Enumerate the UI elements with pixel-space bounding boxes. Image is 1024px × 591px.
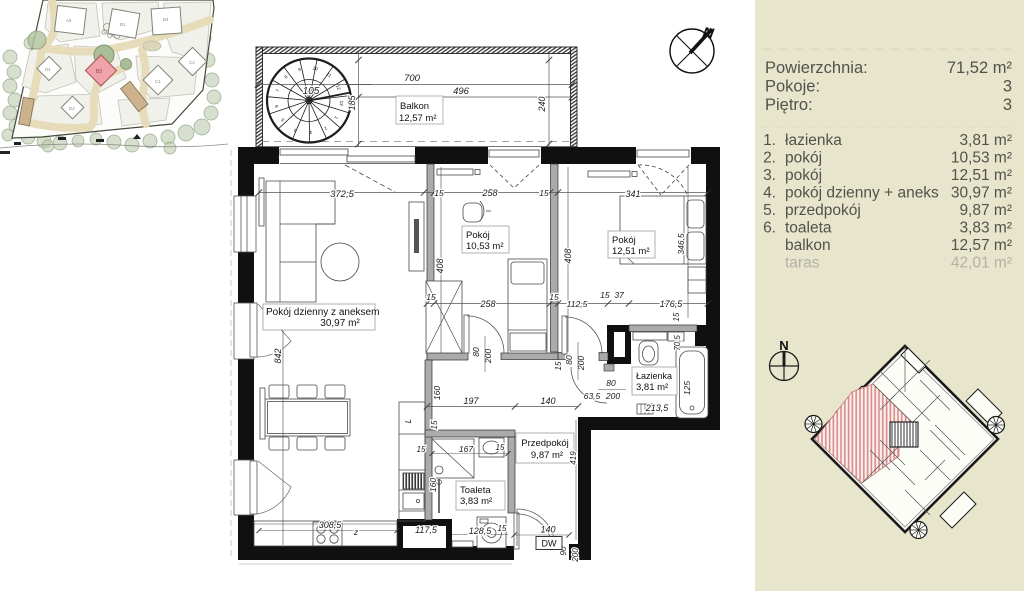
svg-text:3,83 m²: 3,83 m² <box>460 496 492 507</box>
svg-text:15: 15 <box>496 443 505 452</box>
svg-text:Powierzchnia:: Powierzchnia: <box>765 59 868 77</box>
svg-text:372,5: 372,5 <box>330 189 354 200</box>
svg-text:12,51 m²: 12,51 m² <box>612 246 650 257</box>
svg-text:419: 419 <box>569 451 578 465</box>
svg-text:3: 3 <box>1003 78 1012 96</box>
svg-text:1.: 1. <box>763 132 776 149</box>
svg-text:Pokoje:: Pokoje: <box>765 78 820 96</box>
svg-text:197: 197 <box>463 396 479 406</box>
svg-text:80: 80 <box>606 378 616 388</box>
svg-text:71,52 m²: 71,52 m² <box>947 59 1013 77</box>
svg-text:3,81 m²: 3,81 m² <box>636 382 668 393</box>
svg-text:200: 200 <box>576 356 586 371</box>
svg-text:pokój: pokój <box>785 150 822 167</box>
svg-text:10,53 m²: 10,53 m² <box>466 241 504 252</box>
svg-text:15: 15 <box>426 292 436 302</box>
svg-text:12,57 m²: 12,57 m² <box>399 113 437 124</box>
svg-text:A6: A6 <box>66 18 72 23</box>
svg-text:Pokój dzienny z aneksem: Pokój dzienny z aneksem <box>266 307 379 318</box>
svg-text:117,5: 117,5 <box>415 525 438 535</box>
svg-text:700: 700 <box>404 73 421 84</box>
svg-text:80: 80 <box>471 347 481 357</box>
svg-text:3.: 3. <box>763 167 776 184</box>
svg-text:Balkon: Balkon <box>400 101 429 112</box>
svg-text:DW: DW <box>542 539 557 549</box>
svg-text:12,51 m²: 12,51 m² <box>951 167 1012 184</box>
svg-text:3: 3 <box>1003 96 1012 114</box>
svg-text:176,5: 176,5 <box>660 299 684 309</box>
svg-text:13: 13 <box>339 100 344 106</box>
svg-text:B4: B4 <box>163 17 169 22</box>
svg-text:3,81 m²: 3,81 m² <box>959 132 1012 149</box>
svg-text:2.: 2. <box>763 150 776 167</box>
svg-text:C2: C2 <box>189 60 195 65</box>
svg-text:Przedpokój: Przedpokój <box>521 438 569 449</box>
svg-text:N: N <box>779 338 788 353</box>
svg-text:pokój dzienny + aneks: pokój dzienny + aneks <box>785 185 939 202</box>
svg-text:258: 258 <box>481 188 497 198</box>
svg-text:408: 408 <box>563 248 573 263</box>
svg-text:42,01 m²: 42,01 m² <box>951 255 1012 272</box>
svg-text:125: 125 <box>682 381 692 395</box>
svg-text:Toaleta: Toaleta <box>460 485 491 496</box>
svg-text:15 37: 15 37 <box>600 290 624 300</box>
svg-text:D1: D1 <box>45 67 51 72</box>
svg-text:341: 341 <box>625 189 640 199</box>
svg-text:240: 240 <box>537 96 547 112</box>
svg-text:213,5: 213,5 <box>645 403 670 413</box>
svg-text:balkon: balkon <box>785 237 831 254</box>
svg-text:taras: taras <box>785 255 820 272</box>
svg-text:4.: 4. <box>763 185 776 202</box>
svg-text:Pokój: Pokój <box>612 235 636 246</box>
svg-text:Piętro:: Piętro: <box>765 96 813 114</box>
svg-text:15: 15 <box>417 445 426 454</box>
svg-text:B2: B2 <box>96 69 102 75</box>
svg-text:160: 160 <box>428 478 438 492</box>
svg-text:63,5: 63,5 <box>584 391 601 401</box>
svg-text:5.: 5. <box>763 202 776 219</box>
svg-text:15: 15 <box>554 361 563 370</box>
svg-text:80: 80 <box>564 355 574 365</box>
svg-text:200: 200 <box>483 349 493 364</box>
svg-text:308,5: 308,5 <box>319 520 343 530</box>
svg-text:167: 167 <box>459 444 473 454</box>
svg-text:Pokój: Pokój <box>466 230 490 241</box>
svg-text:15: 15 <box>549 292 559 302</box>
svg-text:Łazienka: Łazienka <box>636 371 672 381</box>
svg-text:9,87 m²: 9,87 m² <box>531 450 563 461</box>
svg-text:przedpokój: przedpokój <box>785 202 861 219</box>
svg-text:496: 496 <box>453 86 470 97</box>
svg-text:toaleta: toaleta <box>785 220 832 237</box>
svg-text:15: 15 <box>539 188 549 198</box>
svg-text:z: z <box>353 527 359 537</box>
svg-text:12,57 m²: 12,57 m² <box>951 237 1012 254</box>
svg-text:N: N <box>701 24 716 43</box>
svg-text:3,83 m²: 3,83 m² <box>959 220 1012 237</box>
svg-text:9,87 m²: 9,87 m² <box>959 202 1012 219</box>
svg-text:200: 200 <box>571 548 580 563</box>
svg-text:105: 105 <box>303 86 320 97</box>
svg-text:185: 185 <box>347 95 357 111</box>
svg-text:15: 15 <box>430 420 439 429</box>
svg-text:C1: C1 <box>155 79 161 84</box>
svg-text:140: 140 <box>540 396 555 406</box>
svg-text:B1: B1 <box>120 22 126 27</box>
svg-text:140: 140 <box>540 525 555 535</box>
svg-text:15: 15 <box>434 188 444 198</box>
svg-text:30,97 m²: 30,97 m² <box>320 318 360 329</box>
svg-text:70,5: 70,5 <box>673 335 682 351</box>
svg-text:346,5: 346,5 <box>676 233 686 255</box>
svg-text:15: 15 <box>498 524 507 533</box>
svg-text:842: 842 <box>273 348 283 363</box>
svg-text:łazienka: łazienka <box>785 132 842 149</box>
svg-text:160: 160 <box>432 386 442 400</box>
svg-text:200: 200 <box>605 391 620 401</box>
svg-text:15: 15 <box>672 312 681 321</box>
svg-text:D2: D2 <box>69 106 75 111</box>
svg-text:258: 258 <box>479 299 495 309</box>
svg-text:pokój: pokój <box>785 167 822 184</box>
svg-text:10,53 m²: 10,53 m² <box>951 150 1012 167</box>
svg-text:128,5: 128,5 <box>469 526 493 536</box>
svg-text:6.: 6. <box>763 220 776 237</box>
svg-text:408: 408 <box>435 258 445 273</box>
svg-text:30,97 m²: 30,97 m² <box>951 185 1012 202</box>
svg-text:L: L <box>404 419 413 423</box>
svg-text:112,5: 112,5 <box>567 299 588 309</box>
